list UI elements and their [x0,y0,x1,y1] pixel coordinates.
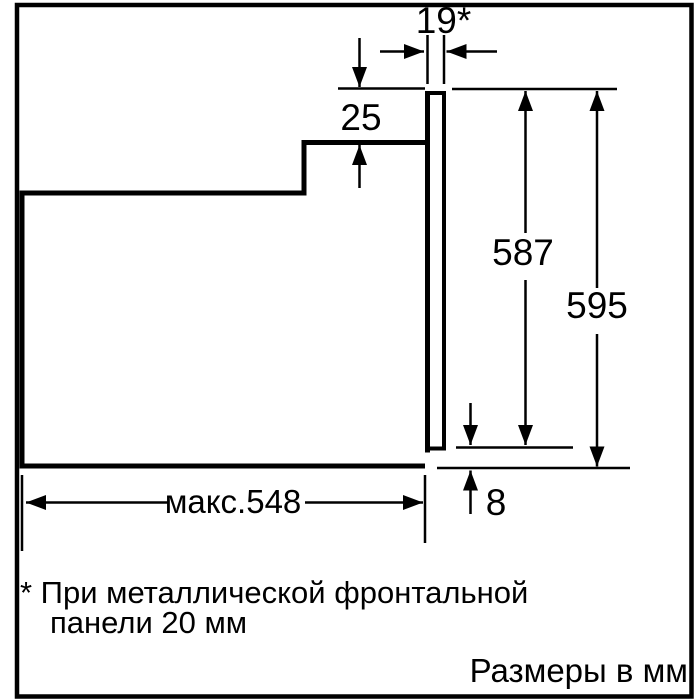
oven-dimension-diagram: 19* 25 587 595 8 [0,0,700,700]
dim-inner-height: 587 [492,91,554,445]
dim-25-label: 25 [340,97,381,138]
dim-595-label: 595 [566,285,628,326]
dim-max-depth: макс.548 [22,475,425,551]
dim-8-label: 8 [486,482,507,523]
oven-body-outline [22,143,425,467]
units-caption: Размеры в мм [470,652,688,689]
dim-total-height: 595 [566,91,628,467]
footnote: * При металлической фронтальной панели 2… [20,575,528,640]
oven-body [22,91,444,466]
dim-bottom-gap: 8 [437,403,630,523]
dim-panel-thickness: 19* [380,0,497,84]
dim-top-step: 25 [338,38,425,188]
dim-548-label: макс.548 [165,483,302,520]
dim-19-label: 19* [416,0,472,41]
footnote-line-2: панели 20 мм [50,605,247,640]
screenshot-canvas: 19* 25 587 595 8 [0,0,700,700]
dim-587-label: 587 [492,232,554,273]
